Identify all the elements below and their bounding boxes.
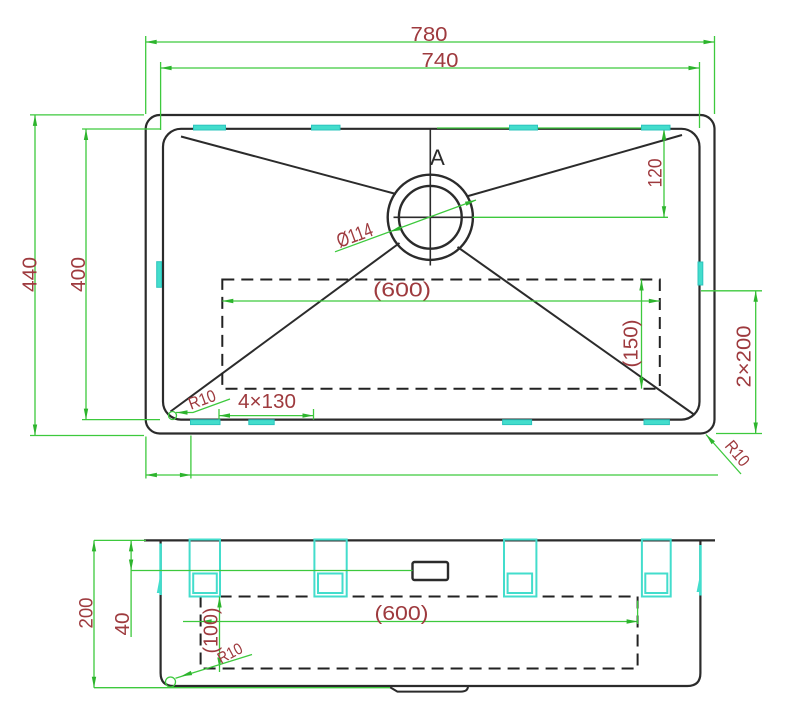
svg-text:200: 200 — [77, 598, 98, 629]
svg-text:R10: R10 — [186, 386, 219, 413]
svg-text:A: A — [430, 145, 445, 170]
svg-text:Ø114: Ø114 — [334, 219, 376, 252]
svg-text:780: 780 — [411, 24, 448, 46]
svg-text:(150): (150) — [621, 320, 643, 368]
svg-text:(100): (100) — [201, 608, 223, 654]
svg-text:R10: R10 — [721, 437, 754, 471]
svg-text:400: 400 — [68, 257, 90, 292]
svg-text:(600): (600) — [373, 280, 431, 302]
svg-text:4×130: 4×130 — [238, 391, 296, 413]
svg-text:2×200: 2×200 — [734, 326, 756, 388]
svg-text:440: 440 — [20, 257, 42, 292]
svg-text:(600): (600) — [375, 603, 429, 625]
svg-text:40: 40 — [112, 613, 134, 636]
svg-text:120: 120 — [646, 159, 667, 188]
svg-text:740: 740 — [422, 50, 459, 72]
